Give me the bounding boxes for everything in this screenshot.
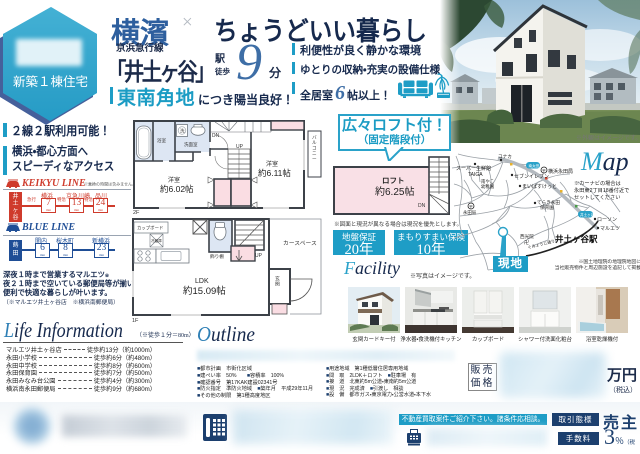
svg-text:1F: 1F	[132, 318, 139, 324]
svg-text:スーパー生鮮館: スーパー生鮮館	[456, 165, 491, 172]
svg-text:セブンイレブン: セブンイレブン	[514, 173, 549, 180]
svg-text:バルコニー: バルコニー	[312, 135, 317, 161]
svg-text:冷蔵庫: 冷蔵庫	[151, 238, 162, 243]
svg-text:マルエツ: マルエツ	[600, 226, 620, 232]
svg-text:UP: UP	[255, 253, 263, 259]
svg-text:保育園: 保育園	[540, 204, 554, 211]
svg-text:まいばすけっと: まいばすけっと	[522, 183, 557, 190]
svg-text:ローソン: ローソン	[597, 217, 617, 223]
svg-text:カースペース: カースペース	[283, 240, 317, 247]
svg-text:洋室: 洋室	[168, 176, 180, 184]
svg-text:約6.02帖: 約6.02帖	[160, 184, 194, 194]
svg-text:浴室: 浴室	[157, 137, 166, 144]
svg-text:約6.11帖: 約6.11帖	[258, 168, 291, 178]
svg-text:約6.25帖: 約6.25帖	[375, 185, 414, 198]
svg-text:飾り棚: 飾り棚	[210, 253, 224, 260]
svg-text:洗: 洗	[180, 128, 185, 135]
svg-text:西光院: 西光院	[520, 233, 534, 240]
svg-text:DN: DN	[418, 203, 426, 209]
svg-text:洋室: 洋室	[266, 160, 278, 168]
svg-text:ぐみょうじ通り: ぐみょうじ通り	[527, 237, 556, 250]
svg-text:井土ヶ谷駅: 井土ヶ谷駅	[555, 234, 598, 244]
svg-text:ロフト: ロフト	[382, 176, 405, 185]
svg-text:井土ヶ谷: 井土ヶ谷	[580, 212, 595, 217]
svg-text:約15.09帖: 約15.09帖	[183, 285, 226, 297]
svg-text:2F: 2F	[133, 210, 140, 215]
svg-text:LDK: LDK	[195, 278, 209, 285]
svg-text:〒: 〒	[542, 168, 547, 173]
svg-text:※外観はイメージです。: ※外観はイメージです。	[576, 134, 640, 142]
svg-text:カップボード: カップボード	[137, 225, 163, 232]
svg-text:洗面室: 洗面室	[184, 141, 198, 148]
svg-text:横浜永田局: 横浜永田局	[548, 168, 573, 175]
svg-text:TAIGA: TAIGA	[468, 172, 483, 178]
svg-text:幼稚園: 幼稚園	[481, 183, 495, 190]
svg-text:玄関: 玄関	[275, 275, 280, 287]
svg-text:南太田: 南太田	[529, 163, 540, 168]
svg-text:〒: 〒	[469, 204, 474, 209]
svg-text:永田局: 永田局	[463, 209, 476, 216]
